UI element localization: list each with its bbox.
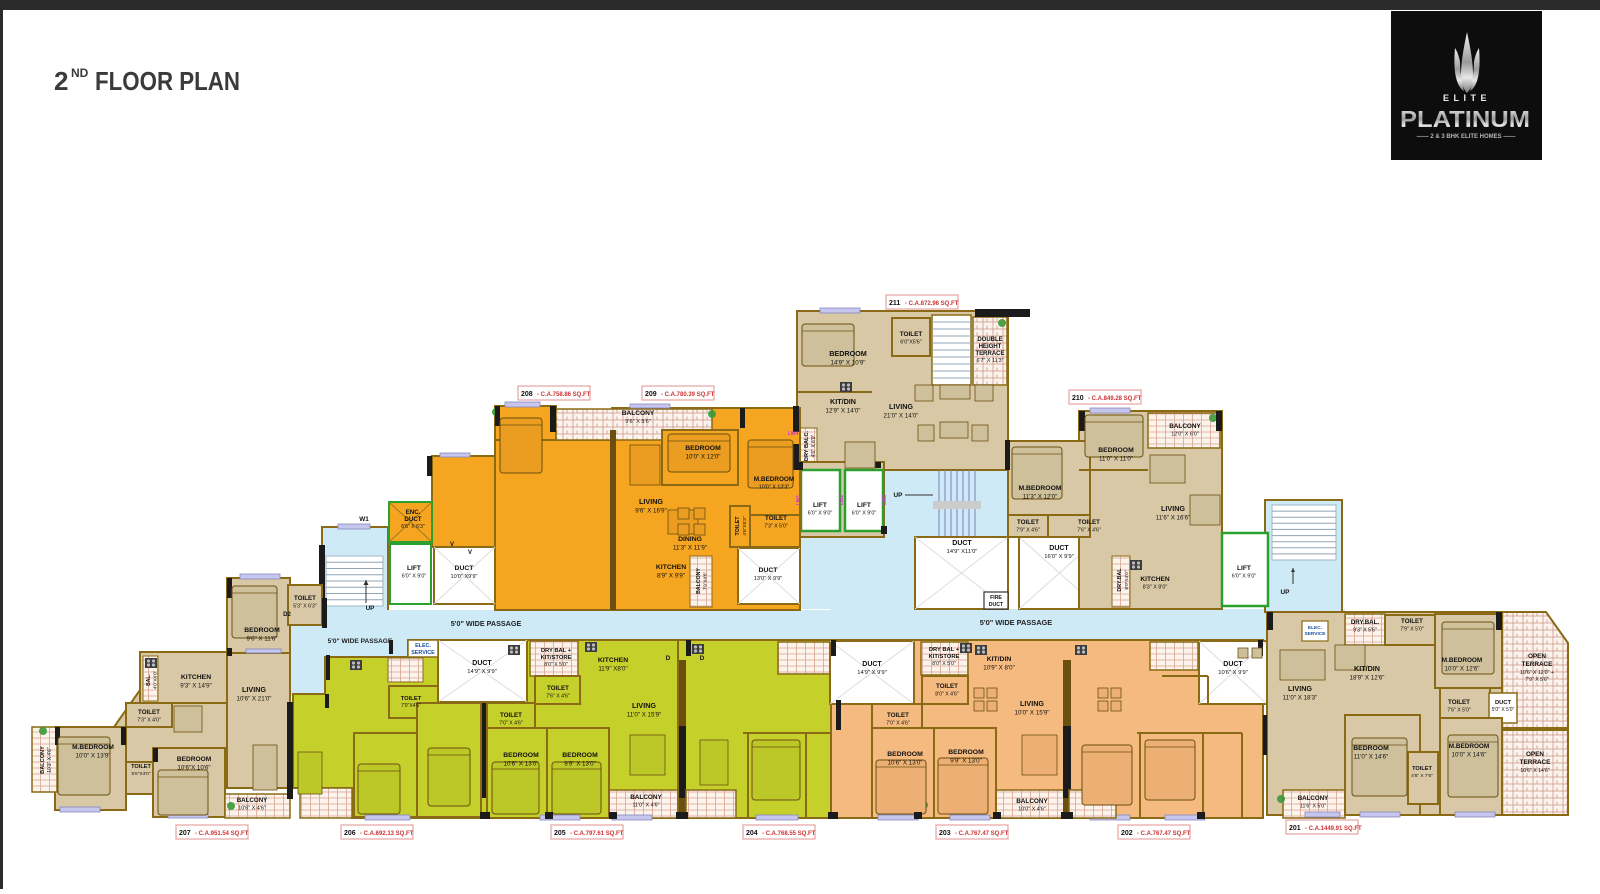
svg-text:D: D: [700, 655, 705, 662]
svg-text:8'0" X 5'0": 8'0" X 5'0": [932, 661, 956, 667]
svg-text:DRY BAL +: DRY BAL +: [541, 648, 572, 654]
svg-text:9'9" X 13'0": 9'9" X 13'0": [564, 760, 596, 767]
svg-text:9'9" X 13'0": 9'9" X 13'0": [950, 757, 982, 764]
svg-text:210: 210: [1072, 395, 1084, 402]
svg-text:LIVING: LIVING: [1161, 504, 1185, 513]
svg-text:ELITE: ELITE: [1443, 93, 1491, 103]
svg-text:7'6" X 4'6": 7'6" X 4'6": [1077, 527, 1101, 533]
svg-text:7'9" X 5'0": 7'9" X 5'0": [1400, 626, 1424, 632]
svg-text:LIVING: LIVING: [889, 402, 913, 411]
svg-text:LIVING: LIVING: [242, 685, 266, 694]
svg-text:DRY.BAL.: DRY.BAL.: [1351, 619, 1380, 626]
svg-text:LIFT: LIFT: [407, 565, 421, 572]
svg-text:BEDROOM: BEDROOM: [244, 627, 280, 634]
svg-text:7'0"X4'6": 7'0"X4'6": [401, 703, 421, 709]
svg-text:14'9" X11'0": 14'9" X11'0": [947, 549, 978, 555]
svg-text:BEDROOM: BEDROOM: [177, 756, 212, 763]
svg-text:UP: UP: [1281, 589, 1291, 596]
svg-text:7'6" X 5'0": 7'6" X 5'0": [1447, 707, 1471, 713]
svg-text:OPEN: OPEN: [1526, 751, 1544, 758]
svg-text:TOILET: TOILET: [735, 516, 741, 536]
svg-text:14'9" X 10'9": 14'9" X 10'9": [831, 359, 866, 366]
svg-text:LW3: LW3: [882, 495, 888, 505]
svg-text:KITCHEN: KITCHEN: [181, 674, 211, 681]
svg-text:KITCHEN: KITCHEN: [1140, 576, 1170, 583]
svg-text:211: 211: [889, 300, 900, 307]
svg-text:11'0" X 18'3": 11'0" X 18'3": [1283, 694, 1318, 701]
svg-text:TOILET: TOILET: [1017, 519, 1039, 526]
svg-text:7'9"X4'6": 7'9"X4'6": [703, 571, 708, 590]
svg-text:ND: ND: [71, 66, 89, 80]
svg-text:10'0" X9'9": 10'0" X9'9": [451, 574, 478, 580]
svg-text:6'0" X 9'0": 6'0" X 9'0": [1232, 574, 1257, 580]
svg-text:BEDROOM: BEDROOM: [503, 752, 539, 759]
svg-text:10'0" X 14'6": 10'0" X 14'6": [1452, 751, 1487, 758]
svg-text:10'0" X 12'6": 10'0" X 12'6": [1445, 665, 1480, 672]
svg-text:- C.A.767.47 SQ.FT: - C.A.767.47 SQ.FT: [955, 831, 1009, 837]
svg-text:10'6" X 21'0": 10'6" X 21'0": [237, 695, 272, 702]
svg-text:9'3" X 14'9": 9'3" X 14'9": [180, 682, 212, 689]
svg-text:4'6" X 8'0": 4'6" X 8'0": [811, 434, 817, 457]
svg-text:BEDROOM: BEDROOM: [1098, 447, 1134, 454]
svg-text:M.BEDROOM: M.BEDROOM: [1018, 485, 1061, 492]
svg-text:LW4: LW4: [788, 431, 798, 437]
svg-text:V: V: [450, 542, 454, 548]
svg-text:205: 205: [554, 830, 566, 837]
svg-text:DRY.BAL: DRY.BAL: [1117, 568, 1123, 592]
svg-text:11'6" X 5'0": 11'6" X 5'0": [1300, 803, 1326, 809]
svg-text:8'0" X 5'0": 8'0" X 5'0": [544, 662, 568, 668]
svg-text:- C.A.780.39 SQ.FT: - C.A.780.39 SQ.FT: [661, 392, 715, 398]
svg-text:BEDROOM: BEDROOM: [1353, 745, 1389, 752]
svg-text:8'3" X 8'0": 8'3" X 8'0": [1143, 585, 1168, 591]
svg-text:TOILET: TOILET: [401, 696, 422, 702]
svg-text:BEDROOM: BEDROOM: [829, 349, 867, 358]
svg-text:BALCONY: BALCONY: [622, 410, 655, 417]
svg-text:DUCT: DUCT: [759, 567, 779, 574]
svg-text:5'6"X4'0": 5'6"X4'0": [131, 771, 150, 777]
svg-text:6'0" X 9'0": 6'0" X 9'0": [808, 511, 833, 517]
svg-text:13'0" X 9'9": 13'0" X 9'9": [754, 576, 783, 582]
svg-text:—— 2 & 3 BHK ELITE HOMES ——: —— 2 & 3 BHK ELITE HOMES ——: [1417, 134, 1516, 140]
svg-text:UP: UP: [366, 605, 375, 612]
svg-text:10'6" X 9'9": 10'6" X 9'9": [1218, 670, 1248, 676]
svg-text:V: V: [468, 550, 472, 556]
svg-text:TOILET: TOILET: [765, 515, 787, 522]
svg-text:LIVING: LIVING: [639, 497, 663, 506]
svg-text:9'6" X 11'6": 9'6" X 11'6": [246, 635, 277, 642]
svg-text:LIVING: LIVING: [1020, 699, 1044, 708]
svg-text:7'0" X 4'6": 7'0" X 4'6": [886, 720, 910, 726]
svg-text:DRY BAL +: DRY BAL +: [929, 647, 960, 653]
svg-text:14'9" X 9'9": 14'9" X 9'9": [467, 669, 497, 675]
svg-text:M.BEDROOM: M.BEDROOM: [72, 744, 114, 751]
svg-text:BALCONY: BALCONY: [237, 797, 268, 804]
svg-text:12'9" X 14'0": 12'9" X 14'0": [826, 407, 861, 414]
svg-text:D2: D2: [283, 612, 291, 618]
svg-text:11'3" X 11'9": 11'3" X 11'9": [673, 544, 707, 551]
svg-text:LIFT: LIFT: [1237, 565, 1251, 572]
svg-text:6'0" X 9'0": 6'0" X 9'0": [852, 511, 877, 517]
svg-text:- C.A.849.28 SQ.FT: - C.A.849.28 SQ.FT: [1088, 396, 1142, 402]
svg-text:TOILET: TOILET: [887, 712, 909, 719]
svg-text:LIFT: LIFT: [857, 502, 871, 509]
svg-text:21'0" X 14'0": 21'0" X 14'0": [884, 412, 919, 419]
svg-text:TOILET: TOILET: [294, 595, 316, 602]
svg-text:6'0"X5'6": 6'0"X5'6": [900, 340, 922, 346]
svg-text:LIVING: LIVING: [1288, 684, 1312, 693]
svg-text:18'9" X 12'6": 18'9" X 12'6": [1350, 674, 1385, 681]
svg-text:KIT/DIN: KIT/DIN: [830, 397, 856, 406]
svg-text:11'0" X 15'9": 11'0" X 15'9": [627, 711, 662, 718]
svg-text:7'6" X 4'6": 7'6" X 4'6": [546, 693, 570, 699]
svg-text:5'0" WIDE PASSAGE: 5'0" WIDE PASSAGE: [451, 619, 522, 628]
svg-text:207: 207: [179, 830, 191, 837]
svg-text:10'6" X 13'0": 10'6" X 13'0": [888, 759, 923, 766]
svg-text:10'0" X 13'3": 10'0" X 13'3": [759, 485, 790, 491]
svg-text:8'0" X 4'6": 8'0" X 4'6": [935, 691, 959, 697]
svg-text:LW1: LW1: [796, 495, 802, 505]
svg-text:ELEC.: ELEC.: [1308, 625, 1322, 631]
svg-text:12'0" X 6'0": 12'0" X 6'0": [1171, 432, 1199, 438]
svg-text:- C.A.1449.91 SQ.FT: - C.A.1449.91 SQ.FT: [1305, 826, 1362, 832]
svg-text:FLOOR PLAN: FLOOR PLAN: [95, 66, 240, 96]
svg-text:- C.A.872.96 SQ.FT: - C.A.872.96 SQ.FT: [905, 301, 959, 307]
svg-text:TOILET: TOILET: [936, 683, 958, 690]
svg-text:2: 2: [54, 66, 68, 96]
svg-text:11'9" X8'0": 11'9" X8'0": [598, 665, 627, 672]
svg-text:9'6" X 5'6": 9'6" X 5'6": [625, 419, 650, 425]
svg-text:KIT/STORE: KIT/STORE: [929, 654, 960, 660]
svg-text:DUCT: DUCT: [472, 660, 492, 667]
svg-text:DUCT: DUCT: [989, 602, 1004, 608]
svg-text:209: 209: [645, 391, 657, 398]
svg-text:SERVICE: SERVICE: [411, 650, 435, 656]
svg-text:LIVING: LIVING: [632, 701, 656, 710]
svg-text:10'9" X 8'0": 10'9" X 8'0": [983, 664, 1015, 671]
svg-text:BALCONY: BALCONY: [696, 568, 702, 594]
svg-text:11'0" X 4'6": 11'0" X 4'6": [632, 803, 659, 809]
svg-text:10'6" X 14'6": 10'6" X 14'6": [1520, 768, 1549, 774]
svg-text:7'0" X 4'6": 7'0" X 4'6": [499, 720, 523, 726]
svg-text:11'6" X 16'6": 11'6" X 16'6": [1156, 514, 1191, 521]
svg-text:DUCT: DUCT: [1223, 661, 1243, 668]
svg-text:- C.A.692.13 SQ.FT: - C.A.692.13 SQ.FT: [360, 831, 414, 837]
svg-text:4'0"X4'0": 4'0"X4'0": [153, 670, 158, 689]
svg-text:- C.A.767.47 SQ.FT: - C.A.767.47 SQ.FT: [1137, 831, 1191, 837]
svg-text:10'6" X 13'0": 10'6" X 13'0": [504, 760, 539, 767]
svg-text:TOILET: TOILET: [138, 709, 160, 716]
svg-text:10'0" X 15'9": 10'0" X 15'9": [1015, 709, 1050, 716]
svg-text:206: 206: [344, 830, 356, 837]
svg-text:HEIGHT: HEIGHT: [979, 344, 1002, 350]
svg-text:10'6" X 12'0" +: 10'6" X 12'0" +: [1520, 670, 1554, 676]
svg-text:208: 208: [521, 391, 533, 398]
svg-text:8'9" X 9'9": 8'9" X 9'9": [657, 572, 685, 579]
svg-text:LW2: LW2: [839, 495, 845, 505]
svg-text:11'3" X 12'0": 11'3" X 12'0": [1023, 493, 1058, 500]
svg-text:TERRACE: TERRACE: [1520, 759, 1552, 766]
svg-text:5'0" WIDE PASSAGE: 5'0" WIDE PASSAGE: [980, 618, 1053, 627]
svg-text:TERRACE: TERRACE: [1522, 661, 1554, 668]
svg-text:10'6"X 10'6": 10'6"X 10'6": [177, 764, 210, 771]
svg-text:TOILET: TOILET: [900, 331, 923, 338]
svg-text:8'0"X4'0": 8'0"X4'0": [1124, 570, 1130, 589]
svg-text:BALCONY: BALCONY: [1016, 798, 1048, 805]
svg-text:4'6" X 7'6": 4'6" X 7'6": [1411, 773, 1433, 779]
svg-text:10'0" X 12'0": 10'0" X 12'0": [686, 453, 721, 460]
svg-text:203: 203: [939, 830, 951, 837]
svg-text:5'0" X 5'0": 5'0" X 5'0": [1492, 707, 1515, 713]
svg-text:KITCHEN: KITCHEN: [598, 657, 628, 664]
svg-text:TOILET: TOILET: [1078, 519, 1100, 526]
svg-text:6'6" X 6'3": 6'6" X 6'3": [401, 524, 425, 530]
svg-text:DOUBLE: DOUBLE: [977, 337, 1002, 343]
svg-text:11'0" X 11'0": 11'0" X 11'0": [1099, 455, 1133, 462]
svg-text:5'0" WIDE PASSAGE: 5'0" WIDE PASSAGE: [328, 638, 393, 645]
svg-text:BEDROOM: BEDROOM: [948, 749, 984, 756]
svg-text:7'9" X 4'6": 7'9" X 4'6": [1016, 527, 1040, 533]
svg-text:DUCT: DUCT: [1049, 545, 1069, 552]
svg-text:TOILET: TOILET: [500, 712, 522, 719]
svg-text:M.BEDROOM: M.BEDROOM: [754, 476, 794, 483]
svg-text:9'6" X 16'9": 9'6" X 16'9": [635, 507, 667, 514]
svg-text:D: D: [666, 655, 671, 662]
svg-text:KIT/STORE: KIT/STORE: [541, 655, 572, 661]
svg-text:DINING: DINING: [678, 536, 702, 543]
svg-text:TOILET: TOILET: [1412, 766, 1432, 772]
svg-text:PLATINUM: PLATINUM: [1400, 106, 1530, 132]
svg-text:BEDROOM: BEDROOM: [887, 751, 923, 758]
svg-text:BALCONY: BALCONY: [1169, 423, 1201, 430]
svg-text:SERVICE: SERVICE: [1305, 631, 1327, 637]
svg-text:- C.A.768.55 SQ.FT: - C.A.768.55 SQ.FT: [762, 831, 816, 837]
svg-text:KIT/DIN: KIT/DIN: [1354, 664, 1380, 673]
svg-text:4'6"X5'3": 4'6"X5'3": [742, 516, 748, 535]
svg-text:KIT/DIN: KIT/DIN: [987, 656, 1012, 663]
svg-text:9'3" X 5'6": 9'3" X 5'6": [1353, 627, 1377, 633]
svg-text:7'3" X 5'0": 7'3" X 5'0": [764, 523, 788, 529]
svg-text:TERRACE: TERRACE: [975, 351, 1004, 357]
svg-text:BEDROOM: BEDROOM: [562, 752, 598, 759]
svg-text:5'3" X 6'3": 5'3" X 6'3": [293, 603, 317, 609]
svg-text:DUCT: DUCT: [455, 565, 475, 572]
svg-text:LIFT: LIFT: [813, 502, 827, 509]
svg-text:KITCHEN: KITCHEN: [656, 564, 686, 571]
svg-text:202: 202: [1121, 830, 1133, 837]
svg-text:DUCT: DUCT: [952, 540, 972, 547]
svg-text:201: 201: [1289, 825, 1301, 832]
svg-text:BALCONY: BALCONY: [630, 794, 662, 801]
svg-text:10'6" X 4'6": 10'6" X 4'6": [238, 806, 266, 812]
svg-text:M.BEDROOM: M.BEDROOM: [1442, 657, 1482, 664]
svg-text:TOILET: TOILET: [131, 764, 151, 770]
svg-text:ENC.: ENC.: [406, 509, 421, 516]
svg-text:10'0" X 4'6": 10'0" X 4'6": [1018, 807, 1046, 813]
svg-text:OPEN: OPEN: [1528, 653, 1546, 660]
svg-text:DRY BALC.: DRY BALC.: [804, 430, 810, 461]
svg-text:BEDROOM: BEDROOM: [685, 445, 721, 452]
svg-text:11'0" X 14'6": 11'0" X 14'6": [1354, 753, 1389, 760]
svg-text:M.BEDROOM: M.BEDROOM: [1449, 743, 1489, 750]
svg-text:FIRE: FIRE: [990, 595, 1002, 601]
svg-text:DUCT: DUCT: [862, 661, 882, 668]
svg-text:6'7" X 11'3": 6'7" X 11'3": [976, 358, 1003, 364]
svg-text:TOILET: TOILET: [1448, 699, 1470, 706]
svg-text:TOILET: TOILET: [547, 685, 569, 692]
svg-text:- C.A.951.54 SQ.FT: - C.A.951.54 SQ.FT: [195, 831, 249, 837]
svg-text:7'3" X 4'0": 7'3" X 4'0": [137, 717, 161, 723]
svg-text:6'0" X 9'0": 6'0" X 9'0": [402, 574, 427, 580]
svg-text:204: 204: [746, 830, 758, 837]
svg-text:- C.A.758.86 SQ.FT: - C.A.758.86 SQ.FT: [537, 392, 591, 398]
svg-text:BALCONY: BALCONY: [40, 746, 46, 774]
svg-text:14'9" X 9'9": 14'9" X 9'9": [857, 670, 887, 676]
svg-text:7'9" X 5'6": 7'9" X 5'6": [1525, 677, 1549, 683]
svg-text:BAL.: BAL.: [146, 674, 152, 686]
svg-text:16'0" X 9'9": 16'0" X 9'9": [1044, 554, 1074, 560]
svg-text:10'0" X 13'9": 10'0" X 13'9": [76, 752, 111, 759]
svg-text:W1: W1: [359, 516, 369, 523]
svg-text:10'3" X 4'6": 10'3" X 4'6": [47, 747, 53, 773]
svg-text:BALCONY: BALCONY: [1298, 795, 1329, 802]
svg-text:DUCT: DUCT: [1495, 700, 1512, 706]
svg-text:UP: UP: [894, 492, 904, 499]
svg-text:ELEC.: ELEC.: [415, 643, 431, 649]
svg-text:TOILET: TOILET: [1401, 618, 1423, 625]
svg-text:DUCT: DUCT: [404, 516, 421, 523]
svg-text:- C.A.797.61 SQ.FT: - C.A.797.61 SQ.FT: [570, 831, 624, 837]
